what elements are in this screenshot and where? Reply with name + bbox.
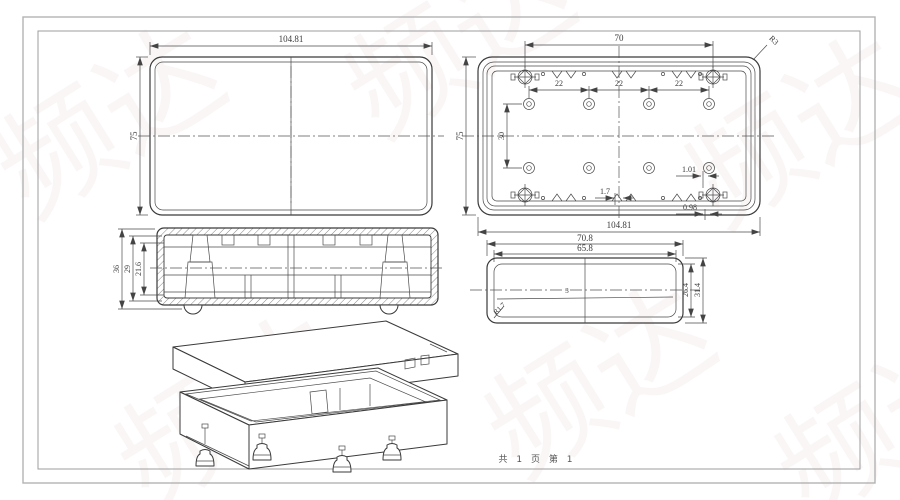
dim-screw-span: 70 — [615, 33, 625, 43]
watermark-text: 频达 — [0, 0, 249, 245]
sheet-footer-page-label: 共 1 页 第 1 — [499, 453, 576, 465]
watermark-text: 频达 — [752, 300, 900, 500]
dim-top-width: 104.81 — [279, 34, 304, 44]
section-foot-right — [380, 305, 398, 314]
dim-bottom-height: 75 — [455, 131, 465, 141]
drawing-canvas: 频达 频达 频达 频达 频达 频达 104.81 75 — [0, 0, 900, 500]
dim-hole-pitch-c: 22 — [675, 79, 683, 88]
dim-offset-x: 1.01 — [682, 165, 696, 174]
isometric-exploded-view — [173, 321, 458, 472]
watermark-layer: 频达 频达 频达 频达 频达 频达 — [0, 0, 900, 500]
dim-end-inner-height: 26.4 — [681, 283, 690, 297]
dim-row-span: 30 — [497, 132, 506, 140]
drawing-sheet: 频达 频达 频达 频达 频达 频达 104.81 75 — [0, 0, 900, 500]
dim-end-inner-width: 65.8 — [577, 243, 593, 253]
section-foot-left — [184, 305, 202, 314]
dim-end-outer-width: 70.8 — [577, 233, 593, 243]
dim-hole-pitch-b: 22 — [615, 79, 623, 88]
watermark-text: 频达 — [662, 10, 900, 255]
dim-end-outer-height: 31.4 — [693, 283, 702, 297]
dim-corner-radius: R3 — [767, 34, 780, 47]
dim-section-total-height: 36 — [112, 265, 121, 273]
dim-bottom-width: 104.81 — [607, 220, 632, 230]
dim-end-rib: 3 — [565, 287, 569, 295]
section-cavity — [164, 235, 431, 298]
dim-wall-thickness: 1.7 — [600, 187, 610, 196]
section-view: 36 29 21.6 — [112, 228, 445, 314]
dim-hole-pitch-a: 22 — [555, 79, 563, 88]
dim-section-mid-height: 29 — [123, 265, 132, 273]
dim-offset-y: 0.98 — [683, 203, 697, 212]
dim-section-inner-height: 21.6 — [134, 262, 143, 276]
dim-top-height: 75 — [129, 131, 139, 141]
